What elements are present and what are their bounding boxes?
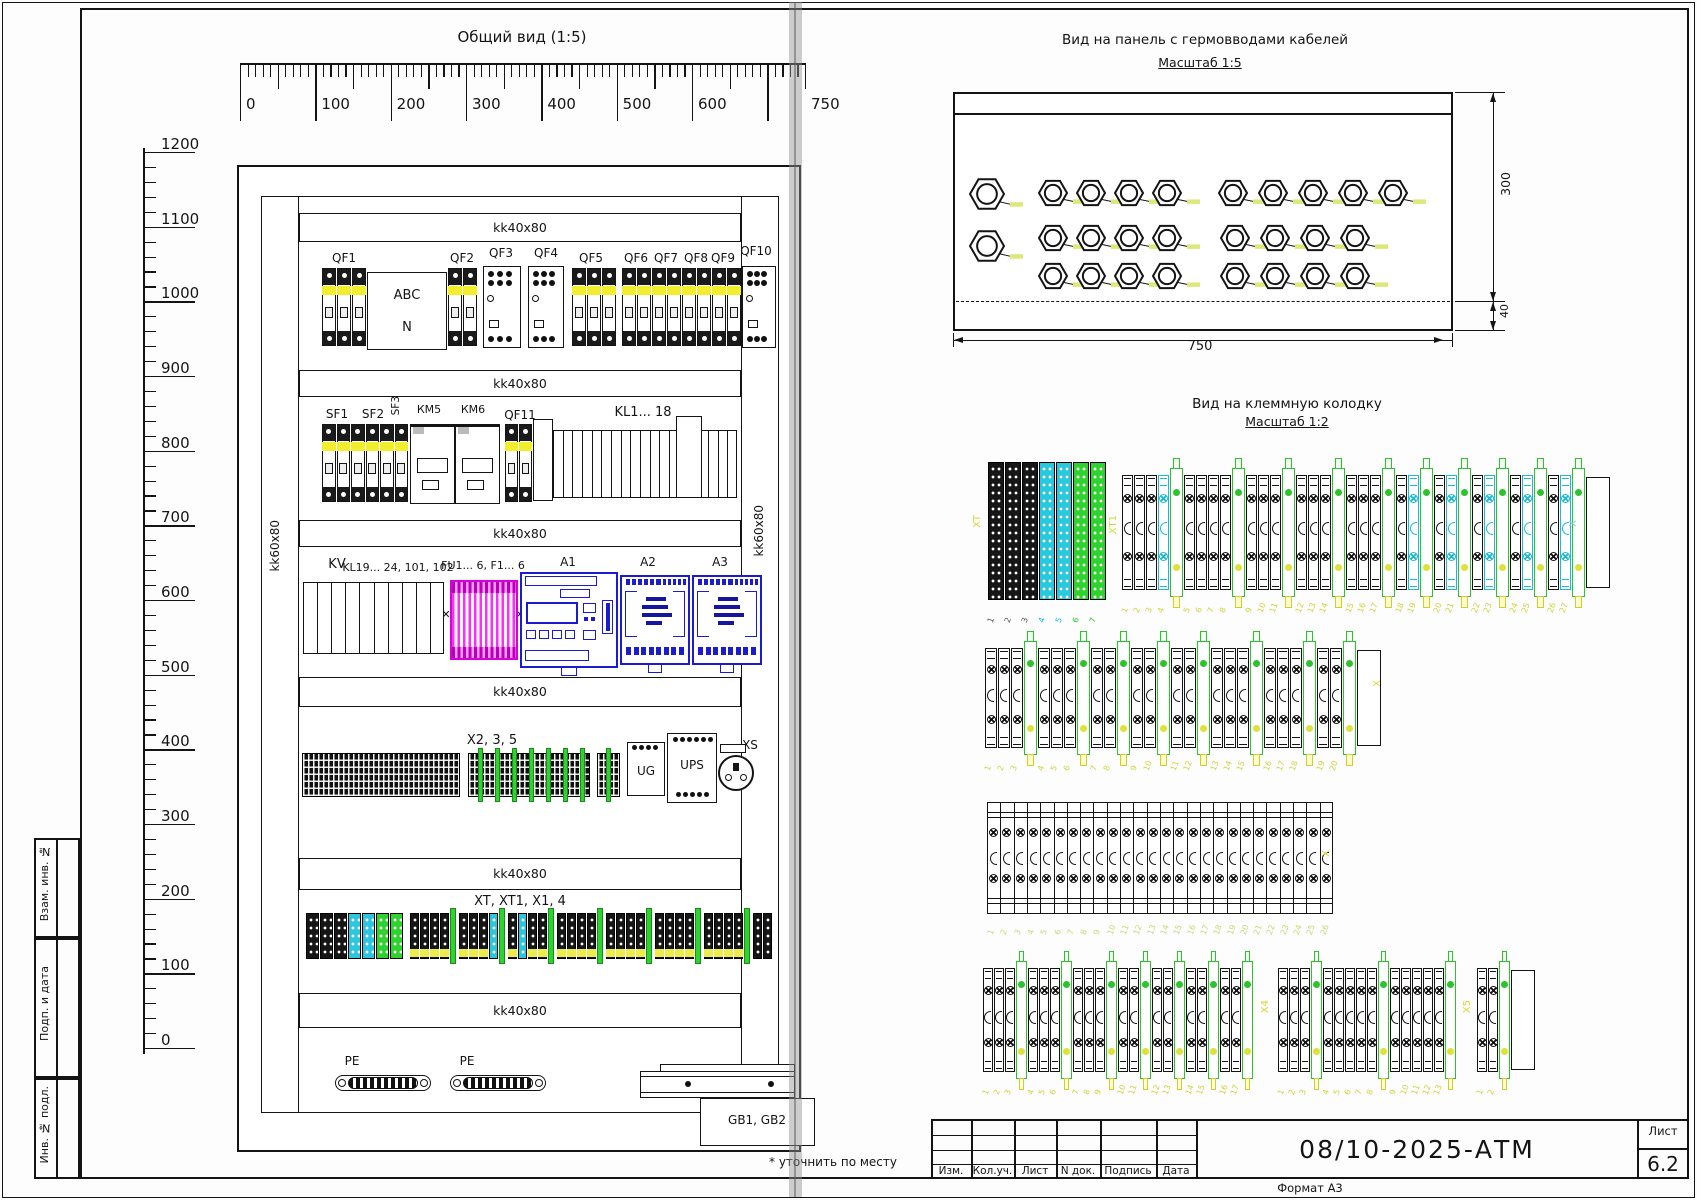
clip — [1083, 852, 1090, 865]
title-block-line — [1056, 1119, 1058, 1179]
fuse-bottom — [452, 647, 516, 658]
h-ruler-tick — [248, 63, 249, 77]
breaker-stripe — [667, 286, 681, 295]
screw — [1229, 828, 1238, 837]
terminal-dot — [541, 271, 547, 277]
clip — [1269, 852, 1276, 865]
terminal-cell — [1220, 968, 1230, 1072]
socket-ground-pin — [733, 763, 739, 771]
screw — [1229, 874, 1238, 883]
v-ruler-tick — [143, 346, 156, 347]
terminal-separator — [1445, 961, 1456, 1079]
screw — [1153, 1038, 1162, 1047]
screw — [1297, 552, 1306, 561]
screw — [1489, 1038, 1498, 1047]
kv-divider — [402, 582, 403, 654]
screw — [1301, 1038, 1310, 1047]
clip — [1186, 689, 1193, 702]
mod-terminal — [730, 579, 733, 585]
h-ruler-tick — [300, 63, 301, 77]
screw — [1093, 665, 1102, 674]
sep-dot — [1537, 564, 1544, 571]
clip — [1324, 1011, 1331, 1024]
group-label-x5: X5 — [1462, 1000, 1473, 1013]
clip — [1136, 522, 1143, 535]
sep-dot — [1501, 1048, 1508, 1055]
clip — [990, 852, 997, 865]
component-label: QF1 — [332, 251, 356, 265]
h-ruler-label: 0 — [246, 95, 256, 113]
terminal-cell — [1005, 968, 1015, 1072]
kl-divider — [727, 430, 728, 498]
breaker-stripe — [727, 286, 741, 295]
mod-print — [714, 613, 744, 617]
plc-lcd — [526, 602, 578, 624]
sep-dot — [1142, 1048, 1149, 1055]
title-block-column: Кол.уч. — [973, 1165, 1013, 1177]
terminal-dot — [708, 737, 713, 742]
v-ruler-label: 600 — [161, 583, 190, 601]
xt-terminal — [306, 913, 319, 959]
breaker-stripe — [395, 442, 409, 451]
clip — [1198, 522, 1205, 535]
v-ruler-tick — [143, 466, 156, 467]
component-label: KL19... 24, 101, 102 — [342, 561, 453, 574]
sep-dot — [1499, 489, 1506, 496]
circuit-breaker — [322, 424, 336, 502]
pe-hole — [338, 1079, 346, 1087]
marker-tag — [440, 949, 449, 957]
h-ruler-tick — [745, 63, 746, 77]
h-ruler-tick — [684, 63, 685, 77]
v-ruler-label: 1200 — [161, 135, 199, 153]
mod-terminal — [683, 579, 686, 585]
clip — [1222, 522, 1229, 535]
clip — [1136, 852, 1143, 865]
h-ruler-tick — [587, 63, 588, 77]
indicator — [487, 295, 494, 302]
terminal-separator — [1061, 961, 1072, 1079]
dim-line — [1493, 92, 1494, 301]
breaker-stripe — [505, 442, 518, 451]
v-ruler-tick — [143, 167, 156, 168]
clip — [1474, 522, 1481, 535]
terminal-cell — [1320, 475, 1331, 590]
v-ruler-tick — [143, 630, 156, 631]
terminal-dot — [533, 280, 539, 286]
sep-dot — [1385, 564, 1392, 571]
screw — [1093, 715, 1102, 724]
breaker-bottom — [668, 331, 680, 345]
screw — [1002, 828, 1011, 837]
terminal-separator — [1140, 961, 1151, 1079]
sep-dot — [1235, 564, 1242, 571]
breaker-window — [685, 307, 693, 318]
clip — [1085, 1011, 1092, 1024]
clip — [1163, 852, 1170, 865]
mod-bracket — [625, 591, 637, 637]
stamp-label: Взам. инв. № — [38, 845, 51, 921]
terminal-view-title: Вид на клеммную колодку — [1192, 396, 1382, 412]
screw — [1321, 494, 1330, 503]
screw — [1269, 828, 1278, 837]
green-marker — [512, 748, 517, 802]
clip — [1346, 1011, 1353, 1024]
mod-terminal-b — [679, 647, 684, 655]
gland-view-title: Вид на панель с гермовводами кабелей — [1062, 32, 1348, 48]
h-ruler-tick — [662, 63, 663, 77]
marker-tag — [626, 949, 635, 957]
h-ruler-tick — [594, 63, 595, 77]
terminal-separator — [1157, 641, 1170, 755]
aux-window — [748, 320, 758, 328]
v-ruler-tick — [143, 615, 156, 616]
h-ruler-tick — [775, 63, 776, 77]
group-label-x: X — [1321, 850, 1332, 857]
terminal-dot — [673, 737, 678, 742]
v-ruler-label: 200 — [161, 882, 190, 900]
clip — [1478, 1011, 1485, 1024]
h-ruler-tick — [639, 63, 640, 77]
screw — [1149, 828, 1158, 837]
screw — [1357, 986, 1366, 995]
breaker-bottom — [603, 331, 615, 345]
screw — [1164, 986, 1173, 995]
terminal-cell — [1300, 968, 1310, 1072]
terminal-separator — [1232, 468, 1245, 597]
kv-divider — [331, 582, 332, 654]
clip — [1348, 522, 1355, 535]
mod-print — [718, 597, 738, 601]
title-block-line — [1196, 1119, 1198, 1179]
title-block-column: Подпись — [1104, 1165, 1151, 1177]
screw — [1269, 874, 1278, 883]
circuit-breaker — [337, 268, 351, 346]
terminal-cell — [1196, 475, 1207, 590]
breaker-bottom — [352, 487, 364, 501]
socket-hole — [725, 774, 732, 781]
screw — [1561, 494, 1570, 503]
terminal-cell — [1014, 822, 1027, 894]
screw — [1069, 874, 1078, 883]
breaker-bottom — [653, 331, 665, 345]
terminal-cell — [1187, 822, 1200, 894]
circuit-breaker — [667, 268, 681, 346]
screw — [1185, 494, 1194, 503]
screw — [1029, 874, 1038, 883]
kl-divider — [708, 430, 709, 498]
breaker-window — [451, 307, 459, 318]
terminal-cell — [1224, 648, 1236, 748]
h-ruler-tick — [647, 63, 648, 77]
terminal-cell — [1028, 968, 1038, 1072]
screw — [1473, 552, 1482, 561]
terminal-cell — [1412, 968, 1422, 1072]
terminal-cell — [1264, 648, 1276, 748]
breaker-bottom — [506, 487, 517, 501]
clip — [1335, 1011, 1342, 1024]
mod-print — [646, 621, 662, 625]
screw — [1147, 494, 1156, 503]
screw — [1096, 1038, 1105, 1047]
screw — [1322, 874, 1331, 883]
breaker-bottom — [338, 487, 350, 501]
circuit-breaker — [682, 268, 696, 346]
clip — [1357, 1011, 1364, 1024]
marker-tag — [675, 949, 684, 957]
v-ruler-label: 300 — [161, 807, 190, 825]
terminal-cell — [1488, 968, 1498, 1072]
v-ruler-tick — [143, 943, 156, 944]
dim-40: 40 — [1498, 304, 1511, 318]
terminal-cell — [1227, 822, 1240, 894]
terminal-dot — [632, 745, 637, 750]
socket-xs — [718, 755, 754, 791]
title-block-line — [1637, 1148, 1689, 1150]
screw — [1123, 552, 1132, 561]
circuit-breaker — [337, 424, 351, 502]
mod-terminal — [740, 579, 743, 585]
clip — [1053, 689, 1060, 702]
terminal-cell — [1240, 822, 1253, 894]
v-ruler-tick — [143, 585, 156, 586]
terminal-cell — [1510, 475, 1521, 590]
mod-terminal — [745, 579, 748, 585]
component-label: SF3 — [390, 396, 402, 415]
clip — [1173, 689, 1180, 702]
screw — [1409, 494, 1418, 503]
screw — [1242, 874, 1251, 883]
clip — [1360, 522, 1367, 535]
screw — [1122, 874, 1131, 883]
terminal-cell — [1396, 475, 1407, 590]
mod-terminal-b — [664, 647, 669, 655]
kl-divider — [630, 430, 631, 498]
kl-divider — [592, 430, 593, 498]
v-ruler-tick — [143, 1003, 156, 1004]
screw — [1215, 874, 1224, 883]
breaker-stripe — [637, 286, 651, 295]
screw — [1271, 494, 1280, 503]
h-ruler-tick — [805, 63, 806, 89]
doc-number: 08/10-2025-АТМ — [1299, 1135, 1535, 1164]
mod-terminal-b — [706, 647, 711, 655]
ups-label: UPS — [680, 758, 704, 772]
terminal-dot — [680, 737, 685, 742]
circuit-breaker — [652, 268, 666, 346]
screw — [1332, 715, 1341, 724]
screw — [1016, 828, 1025, 837]
marker-tag — [606, 949, 615, 957]
plc-led — [584, 617, 588, 621]
terminal-cell — [1146, 475, 1157, 590]
breaker-window — [700, 307, 708, 318]
terminal-dot — [533, 336, 539, 342]
terminal-dot — [761, 271, 767, 277]
clip — [1203, 852, 1210, 865]
breaker-top — [668, 269, 680, 285]
marker-tag — [538, 949, 547, 957]
marker-tag — [567, 949, 576, 957]
screw — [1197, 552, 1206, 561]
sep-dot — [1501, 981, 1508, 988]
screw — [1335, 986, 1344, 995]
green-separator — [499, 908, 505, 964]
terminal-cell — [1290, 648, 1302, 748]
green-marker — [495, 748, 500, 802]
terminal-cell — [1080, 822, 1093, 894]
screw — [1082, 874, 1091, 883]
screw — [1221, 986, 1230, 995]
v-ruler-tick — [143, 779, 156, 780]
kl-divider — [650, 430, 651, 498]
terminal-cell — [1171, 648, 1183, 748]
mod-terminal-b — [751, 647, 756, 655]
breaker-bottom — [638, 331, 650, 345]
clip — [1000, 689, 1007, 702]
xs-bracket — [720, 744, 746, 753]
arrow-down — [1490, 292, 1496, 301]
screw — [1301, 986, 1310, 995]
screw — [1424, 986, 1433, 995]
breaker-stripe — [351, 442, 365, 451]
xt-terminal — [763, 913, 772, 959]
screw — [1309, 494, 1318, 503]
screw — [1309, 552, 1318, 561]
clip — [1160, 522, 1167, 535]
mod-terminal-b — [721, 647, 726, 655]
screw — [1523, 494, 1532, 503]
terminal-dot — [488, 271, 494, 277]
arrow-down — [1490, 321, 1496, 330]
terminal-cell — [1093, 822, 1106, 894]
breaker-stripe — [322, 442, 336, 451]
screw — [1042, 874, 1051, 883]
v-ruler-tick — [143, 271, 156, 272]
clip — [1550, 522, 1557, 535]
sep-dot — [1027, 725, 1034, 732]
general-view-title: Общий вид (1:5) — [457, 28, 586, 46]
end-plate — [1511, 970, 1535, 1070]
h-ruler-tick — [541, 63, 542, 121]
breaker-bottom — [323, 487, 335, 501]
green-separator — [450, 908, 456, 964]
terminal-dot — [687, 737, 692, 742]
rail-label-left: kk60x80 — [268, 520, 282, 572]
h-ruler-tick — [330, 63, 331, 77]
clip — [1410, 522, 1417, 535]
screw — [1069, 828, 1078, 837]
terminal-cell — [1084, 968, 1094, 1072]
h-ruler-tick — [489, 63, 490, 77]
screw — [1085, 1038, 1094, 1047]
kl-divider — [669, 430, 670, 498]
sep-dot — [1210, 981, 1217, 988]
v-ruler-tick — [143, 884, 156, 885]
breaker-window — [508, 463, 516, 474]
plc-tab — [561, 667, 577, 676]
terminal-cell — [1370, 475, 1381, 590]
terminal-cell — [1152, 968, 1162, 1072]
mod-bracket — [673, 591, 685, 637]
clip — [1260, 522, 1267, 535]
breaker-top — [603, 269, 615, 285]
screw — [1133, 715, 1142, 724]
screw — [1209, 552, 1218, 561]
sep-dot — [1173, 564, 1180, 571]
screw — [1053, 715, 1062, 724]
breaker-top — [683, 269, 695, 285]
kv-divider — [359, 582, 360, 654]
screw — [989, 828, 998, 837]
plc-led — [591, 617, 595, 621]
screw — [1239, 665, 1248, 674]
terminal-cell — [1104, 648, 1116, 748]
screw — [1435, 986, 1444, 995]
kl-terminal-strip — [553, 430, 737, 498]
v-ruler-tick — [143, 361, 156, 362]
circuit-breaker — [727, 268, 741, 346]
terminal-dot — [768, 1081, 774, 1087]
terminal-dot — [646, 745, 651, 750]
terminal-cell — [1040, 822, 1053, 894]
component-label: A1 — [560, 555, 576, 569]
h-ruler-tick — [458, 63, 459, 77]
mod-terminal — [704, 579, 708, 585]
breaker-top — [352, 425, 364, 441]
sep-dot — [1253, 725, 1260, 732]
screw — [1189, 828, 1198, 837]
mod-terminal — [722, 579, 726, 585]
km-slot — [462, 458, 493, 473]
h-ruler-tick — [413, 63, 414, 77]
screw — [1435, 552, 1444, 561]
breaker-top — [323, 269, 335, 285]
stamp-label: Инв. № подл. — [38, 1086, 51, 1163]
screw — [1119, 1038, 1128, 1047]
clip — [1310, 522, 1317, 535]
screw — [1271, 552, 1280, 561]
terminal-cell — [1345, 968, 1355, 1072]
sep-dot — [1063, 1048, 1070, 1055]
breaker-window — [325, 463, 333, 474]
screw — [1106, 665, 1115, 674]
screw — [1187, 986, 1196, 995]
breaker-bottom — [464, 331, 476, 345]
mod-terminal — [716, 579, 720, 585]
breaker-stripe — [337, 442, 351, 451]
terminal-cell — [1320, 822, 1333, 894]
screw — [1153, 986, 1162, 995]
mod-terminal — [735, 579, 738, 585]
terminal-dot — [761, 280, 767, 286]
marker-tag — [734, 949, 743, 957]
v-ruler-tick — [143, 540, 156, 541]
v-ruler-label: 800 — [161, 434, 190, 452]
terminal-cell — [985, 648, 997, 748]
breaker-window — [397, 463, 405, 474]
screw — [1279, 665, 1288, 674]
screw — [1473, 494, 1482, 503]
terminal-separator — [1208, 961, 1219, 1079]
terminal-cell — [1134, 475, 1145, 590]
terminal-cell — [1323, 968, 1333, 1072]
km-rect — [422, 480, 439, 490]
h-ruler-tick — [496, 63, 497, 77]
terminal-cell — [1027, 822, 1040, 894]
kl-raised-cell — [676, 416, 702, 498]
component-label: QF6 — [624, 251, 648, 265]
